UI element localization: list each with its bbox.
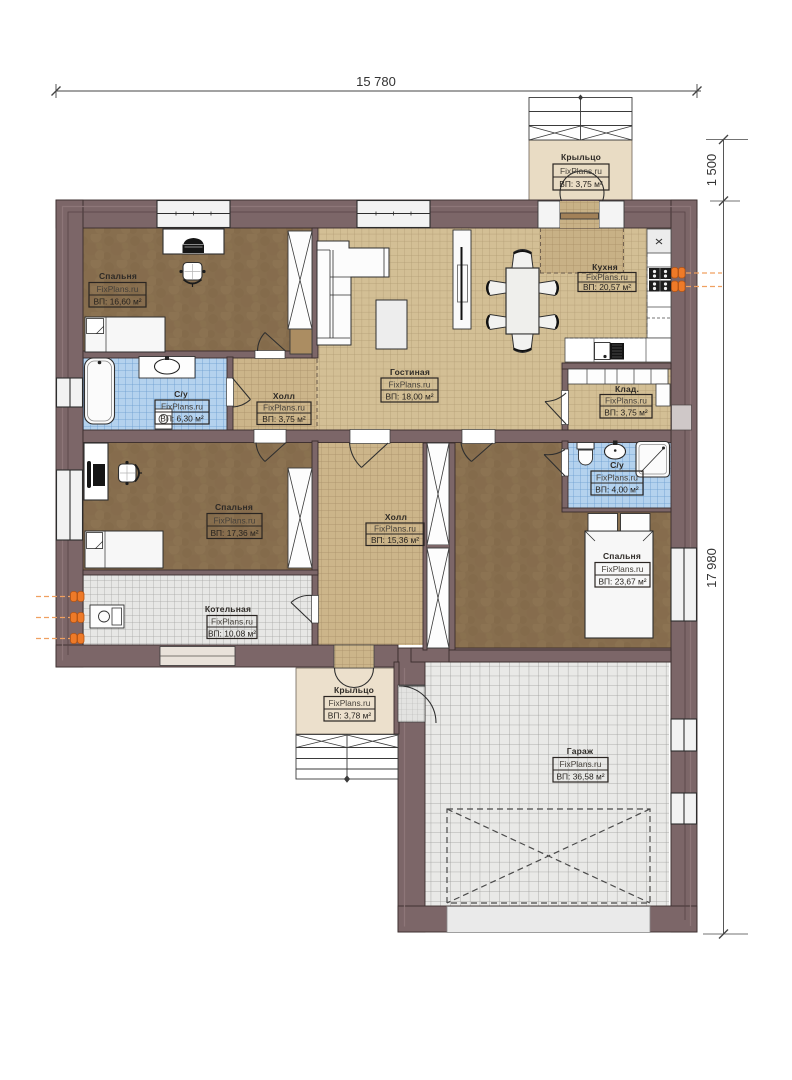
svg-text:ВП: 4,00 м²: ВП: 4,00 м² bbox=[595, 485, 639, 495]
svg-text:FixPlans.ru: FixPlans.ru bbox=[211, 617, 253, 627]
svg-text:ВП: 17,36 м²: ВП: 17,36 м² bbox=[210, 528, 258, 538]
svg-text:ВП: 3,78 м²: ВП: 3,78 м² bbox=[328, 711, 372, 721]
svg-text:ВП: 3,75 м²: ВП: 3,75 м² bbox=[604, 408, 648, 418]
svg-text:ВП: 10,08 м²: ВП: 10,08 м² bbox=[208, 629, 256, 639]
svg-text:FixPlans.ru: FixPlans.ru bbox=[602, 564, 644, 574]
svg-text:FixPlans.ru: FixPlans.ru bbox=[263, 403, 305, 413]
svg-text:15 780: 15 780 bbox=[356, 74, 396, 89]
svg-text:ВП: 36,58 м²: ВП: 36,58 м² bbox=[556, 772, 604, 782]
svg-text:1 500: 1 500 bbox=[704, 154, 719, 187]
svg-text:FixPlans.ru: FixPlans.ru bbox=[560, 759, 602, 769]
svg-text:ВП: 16,60 м²: ВП: 16,60 м² bbox=[93, 297, 141, 307]
svg-text:FixPlans.ru: FixPlans.ru bbox=[596, 473, 638, 483]
svg-text:Спальня: Спальня bbox=[215, 502, 253, 512]
svg-text:Клад.: Клад. bbox=[615, 384, 639, 394]
svg-text:ВП: 15,36 м²: ВП: 15,36 м² bbox=[371, 535, 419, 545]
svg-text:С/у: С/у bbox=[174, 389, 188, 399]
svg-text:17 980: 17 980 bbox=[704, 548, 719, 588]
svg-text:Спальня: Спальня bbox=[99, 271, 137, 281]
svg-text:Холл: Холл bbox=[385, 512, 407, 522]
svg-text:FixPlans.ru: FixPlans.ru bbox=[389, 380, 431, 390]
svg-text:ВП: 3,75 м²: ВП: 3,75 м² bbox=[262, 414, 306, 424]
svg-text:Крыльцо: Крыльцо bbox=[334, 685, 374, 695]
svg-text:Котельная: Котельная bbox=[205, 604, 251, 614]
svg-text:ВП: 23,67 м²: ВП: 23,67 м² bbox=[598, 577, 646, 587]
svg-text:FixPlans.ru: FixPlans.ru bbox=[560, 166, 602, 176]
svg-text:Спальня: Спальня bbox=[603, 551, 641, 561]
svg-text:FixPlans.ru: FixPlans.ru bbox=[329, 698, 371, 708]
svg-text:FixPlans.ru: FixPlans.ru bbox=[214, 516, 256, 526]
svg-text:ВП: 3,75 м²: ВП: 3,75 м² bbox=[559, 179, 603, 189]
svg-text:ВП: 20,57 м²: ВП: 20,57 м² bbox=[583, 282, 631, 292]
svg-text:FixPlans.ru: FixPlans.ru bbox=[374, 524, 416, 534]
svg-text:С/у: С/у bbox=[610, 460, 624, 470]
svg-text:Гостиная: Гостиная bbox=[390, 367, 430, 377]
svg-text:FixPlans.ru: FixPlans.ru bbox=[161, 402, 203, 412]
svg-text:Крыльцо: Крыльцо bbox=[561, 152, 601, 162]
svg-text:Холл: Холл bbox=[273, 391, 295, 401]
svg-text:Кухня: Кухня bbox=[592, 262, 618, 272]
svg-text:FixPlans.ru: FixPlans.ru bbox=[605, 396, 647, 406]
svg-text:ВП: 18,00 м²: ВП: 18,00 м² bbox=[385, 392, 433, 402]
svg-text:Гараж: Гараж bbox=[567, 746, 594, 756]
svg-text:ВП: 6,30 м²: ВП: 6,30 м² bbox=[160, 414, 204, 424]
svg-text:FixPlans.ru: FixPlans.ru bbox=[97, 284, 139, 294]
svg-text:FixPlans.ru: FixPlans.ru bbox=[586, 272, 628, 282]
